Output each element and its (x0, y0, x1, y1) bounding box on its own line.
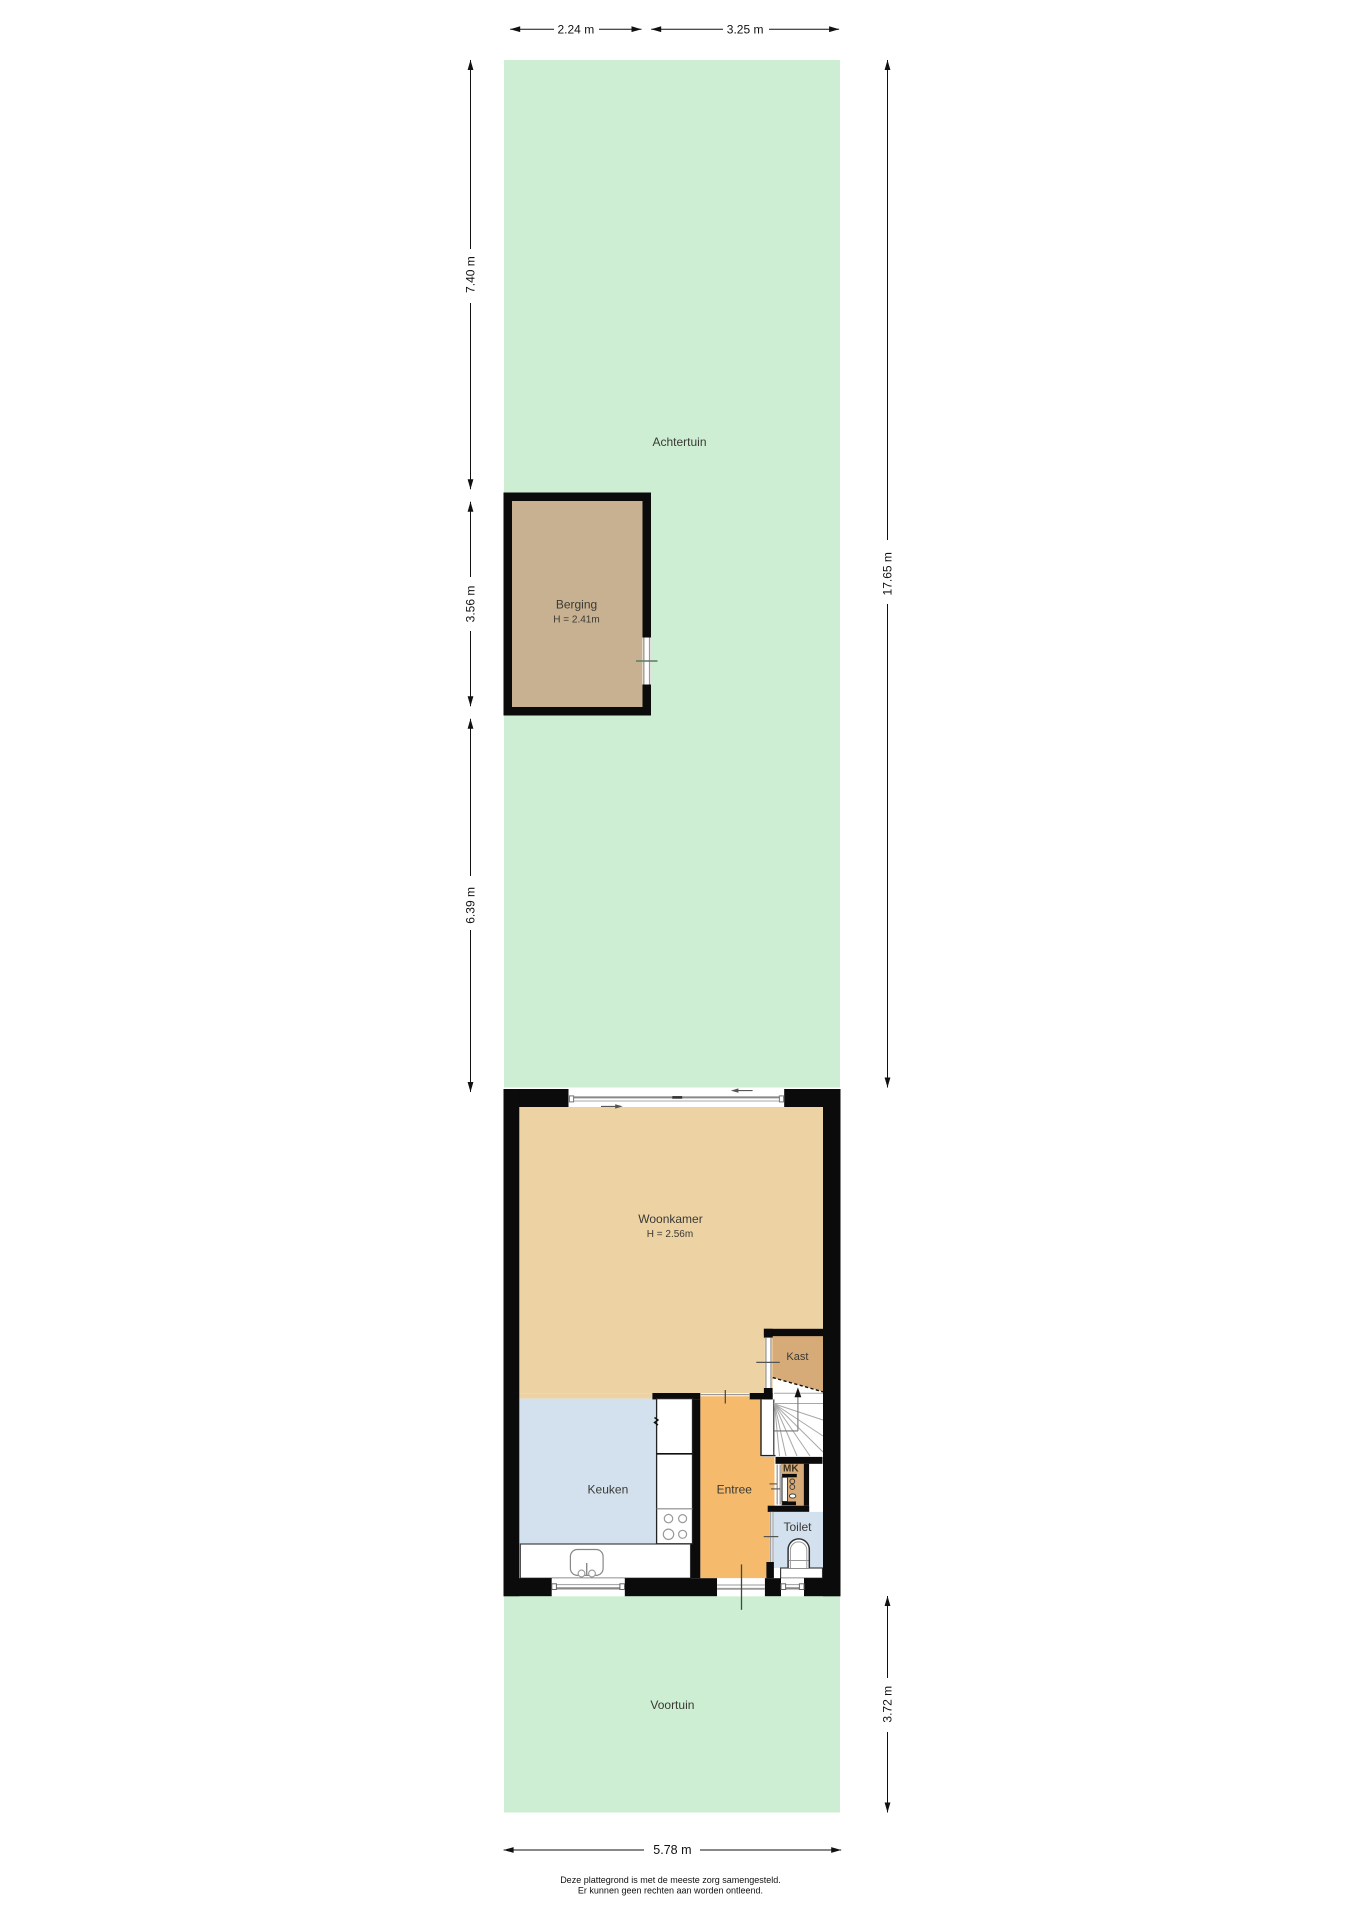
svg-text:3.25 m: 3.25 m (727, 22, 764, 36)
svg-text:3.72 m: 3.72 m (881, 1686, 895, 1723)
svg-text:3.56 m: 3.56 m (464, 586, 478, 623)
svg-text:H = 2.56m: H = 2.56m (647, 1229, 693, 1240)
svg-text:7.40 m: 7.40 m (464, 256, 478, 293)
svg-text:H = 2.41m: H = 2.41m (553, 615, 599, 626)
svg-text:Achtertuin: Achtertuin (652, 435, 706, 449)
svg-text:Deze plattegrond is met de mee: Deze plattegrond is met de meeste zorg s… (560, 1875, 781, 1885)
svg-text:Kast: Kast (786, 1351, 808, 1363)
svg-text:6.39 m: 6.39 m (464, 887, 478, 924)
svg-text:Keuken: Keuken (588, 1483, 629, 1497)
svg-text:MK: MK (783, 1464, 799, 1475)
svg-text:Berging: Berging (556, 598, 597, 612)
svg-text:Entree: Entree (717, 1483, 753, 1497)
svg-text:Toilet: Toilet (783, 1520, 812, 1534)
svg-text:Voortuin: Voortuin (650, 1698, 694, 1712)
svg-text:17.65 m: 17.65 m (881, 552, 895, 595)
svg-text:Woonkamer: Woonkamer (638, 1212, 702, 1226)
svg-text:Er kunnen geen rechten aan wor: Er kunnen geen rechten aan worden ontlee… (578, 1886, 763, 1896)
svg-text:2.24 m: 2.24 m (558, 22, 595, 36)
svg-text:5.78 m: 5.78 m (653, 1843, 691, 1857)
